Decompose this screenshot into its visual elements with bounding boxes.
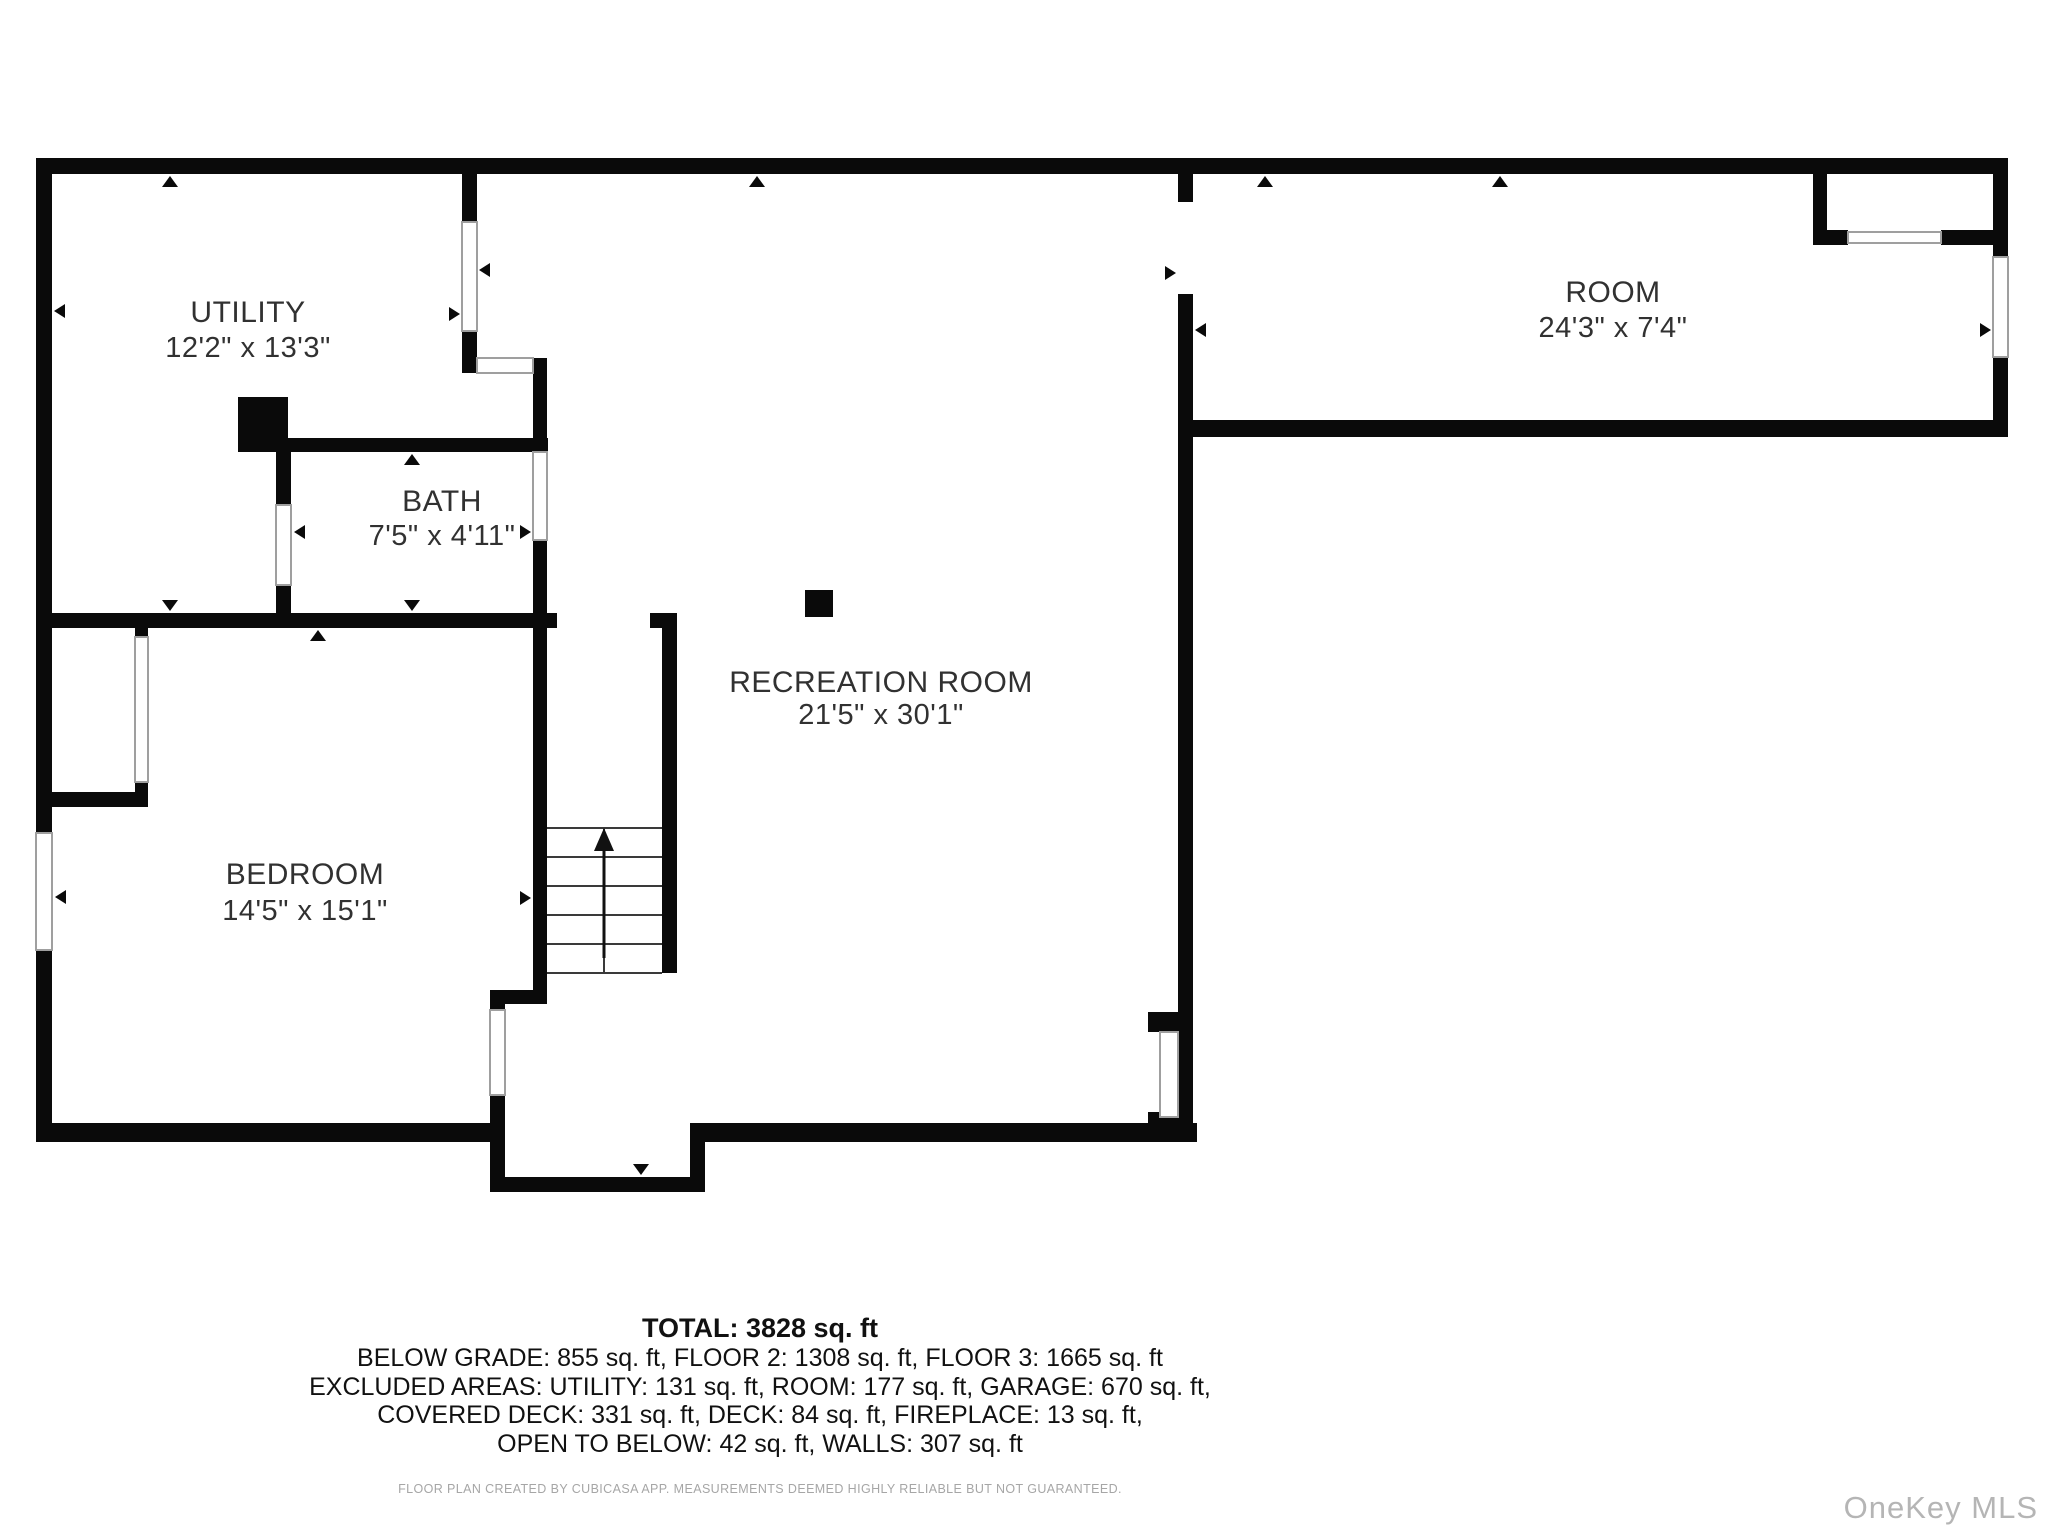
bath-right-door-opening [533, 452, 547, 540]
utility-label: UTILITY [190, 296, 305, 329]
room-right-door-opening [1993, 257, 2008, 357]
support-column [805, 590, 833, 617]
room-dims: 24'3" x 7'4" [1539, 312, 1688, 344]
floor-plan-page: UTILITY 12'2" x 13'3" BATH 7'5" x 4'11" … [0, 0, 2048, 1536]
utility-door-arrow-left [479, 263, 490, 277]
total-area: TOTAL: 3828 sq. ft [10, 1312, 1510, 1344]
bath-dims: 7'5" x 4'11" [369, 520, 516, 552]
floor-plan-drawing: UTILITY 12'2" x 13'3" BATH 7'5" x 4'11" … [0, 0, 2048, 1536]
summary-line: EXCLUDED AREAS: UTILITY: 131 sq. ft, ROO… [10, 1373, 1510, 1402]
left-wall-door-arrow [54, 304, 65, 318]
bath-left-door-arrow [294, 525, 305, 539]
closet-opening [135, 637, 148, 782]
area-summary: TOTAL: 3828 sq. ft BELOW GRADE: 855 sq. … [10, 1312, 1510, 1458]
summary-line: OPEN TO BELOW: 42 sq. ft, WALLS: 307 sq.… [10, 1430, 1510, 1459]
bath-label: BATH [402, 485, 482, 518]
bedroom-label: BEDROOM [226, 858, 385, 891]
recreation-door-leaf [1160, 1032, 1178, 1117]
room-inner-door-arrow [1195, 323, 1206, 337]
utility-door-opening [462, 222, 477, 331]
utility-dims: 12'2" x 13'3" [165, 332, 331, 364]
bedroom-window-arrow [55, 890, 66, 904]
summary-line: BELOW GRADE: 855 sq. ft, FLOOR 2: 1308 s… [10, 1344, 1510, 1373]
deck-window [490, 1010, 505, 1095]
staircase [547, 828, 662, 973]
recreation-dims: 21'5" x 30'1" [798, 699, 964, 731]
notch-window [1848, 232, 1941, 243]
room-left-door-arrow [1165, 266, 1176, 280]
disclaimer-text: FLOOR PLAN CREATED BY CUBICASA APP. MEAS… [10, 1482, 1510, 1496]
watermark: OneKey MLS [1844, 1490, 2038, 1526]
bedroom-window [36, 833, 52, 950]
hall-door-opening [477, 358, 533, 373]
summary-line: COVERED DECK: 331 sq. ft, DECK: 84 sq. f… [10, 1401, 1510, 1430]
stair-hall-door-arrow [520, 891, 531, 905]
room-right-door-arrow [1980, 323, 1991, 337]
utility-door-arrow-right [449, 307, 460, 321]
room-label: ROOM [1565, 276, 1660, 309]
bath-right-door-arrow [520, 525, 531, 539]
bedroom-dims: 14'5" x 15'1" [222, 895, 388, 927]
recreation-label: RECREATION ROOM [729, 666, 1033, 699]
bath-left-door-opening [276, 505, 291, 585]
